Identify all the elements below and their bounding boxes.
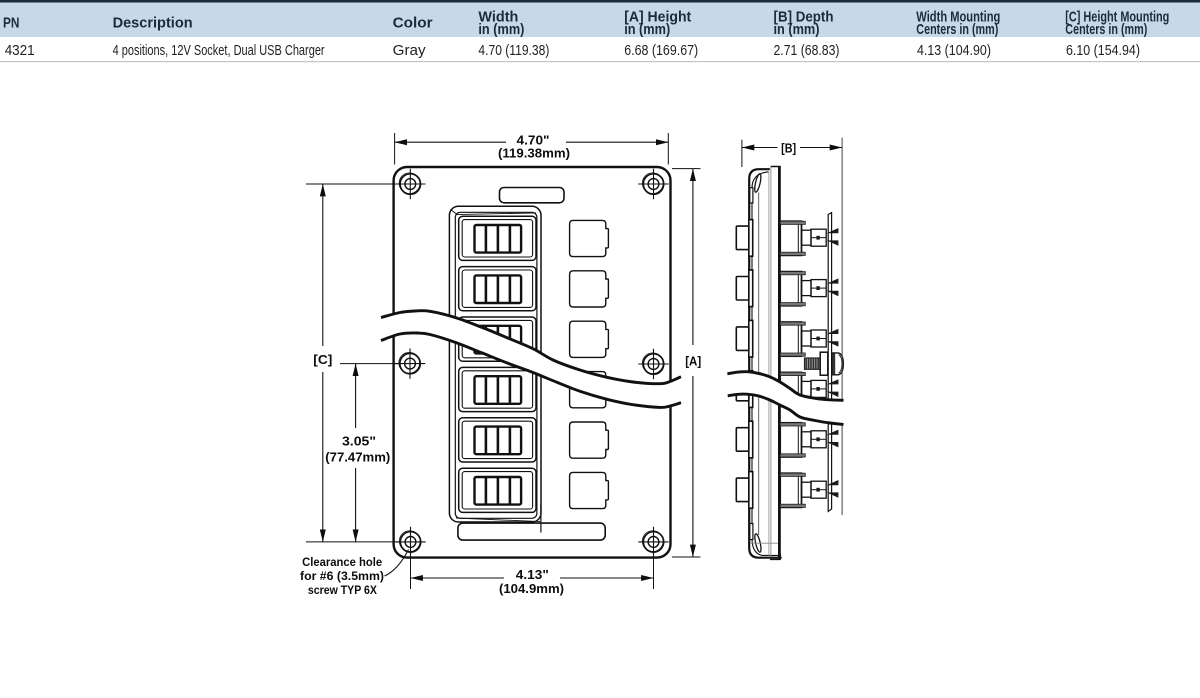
svg-text:[C]: [C] [313,352,332,367]
svg-text:[B]: [B] [781,141,796,156]
svg-text:Gray: Gray [393,43,427,59]
svg-text:4.13 (104.90): 4.13 (104.90) [917,43,991,59]
svg-text:Clearance hole: Clearance hole [302,555,382,569]
svg-text:3.05": 3.05" [342,433,376,448]
svg-text:2.71 (68.83): 2.71 (68.83) [774,43,840,59]
svg-text:for #6 (3.5mm): for #6 (3.5mm) [300,569,384,583]
svg-text:4.70 (119.38): 4.70 (119.38) [478,43,549,59]
svg-text:in (mm): in (mm) [624,21,670,38]
svg-text:(119.38mm): (119.38mm) [498,146,570,161]
svg-text:4 positions, 12V Socket, Dual: 4 positions, 12V Socket, Dual USB Charge… [113,43,325,59]
svg-text:4321: 4321 [5,43,35,59]
svg-text:(104.9mm): (104.9mm) [499,581,564,596]
svg-text:6.10 (154.94): 6.10 (154.94) [1066,43,1140,59]
svg-text:screw TYP 6X: screw TYP 6X [308,583,377,597]
svg-text:Color: Color [393,15,433,32]
svg-text:in (mm): in (mm) [774,21,820,38]
svg-text:Description: Description [113,15,193,32]
svg-text:Centers in (mm): Centers in (mm) [1065,21,1147,38]
svg-text:[A]: [A] [685,354,701,369]
svg-text:in (mm): in (mm) [478,21,524,38]
svg-text:(77.47mm): (77.47mm) [325,449,390,464]
svg-text:4.13": 4.13" [516,567,549,582]
svg-text:PN: PN [3,15,20,32]
svg-text:6.68 (169.67): 6.68 (169.67) [624,43,698,59]
svg-text:Centers in (mm): Centers in (mm) [916,21,998,38]
